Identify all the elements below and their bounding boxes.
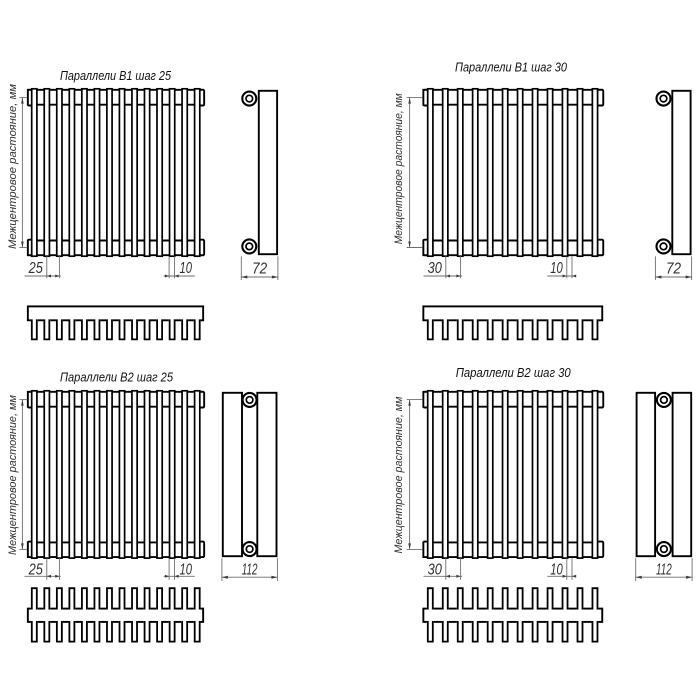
svg-text:25: 25 [28, 561, 43, 578]
svg-text:Межцентровое растояние, мм: Межцентровое растояние, мм [393, 396, 405, 553]
svg-text:Параллели В1 шаг 30: Параллели В1 шаг 30 [455, 60, 568, 75]
svg-text:10: 10 [180, 561, 193, 578]
svg-text:10: 10 [550, 260, 563, 277]
svg-text:112: 112 [656, 561, 672, 578]
svg-text:72: 72 [252, 261, 267, 278]
svg-text:Межцентровое растояние, мм: Межцентровое растояние, мм [7, 395, 19, 555]
svg-text:30: 30 [428, 561, 442, 578]
svg-text:10: 10 [180, 260, 193, 277]
svg-text:10: 10 [550, 561, 563, 578]
svg-text:25: 25 [28, 260, 43, 277]
svg-text:112: 112 [242, 561, 258, 578]
svg-text:Параллели В1 шаг 25: Параллели В1 шаг 25 [60, 68, 172, 83]
svg-text:Межцентровое растояние, мм: Межцентровое растояние, мм [393, 93, 405, 244]
svg-text:72: 72 [666, 261, 681, 278]
svg-text:Межцентровое растояние, мм: Межцентровое растояние, мм [7, 84, 19, 249]
svg-text:Параллели В2 шаг 30: Параллели В2 шаг 30 [456, 365, 572, 380]
svg-text:30: 30 [428, 260, 442, 277]
svg-text:Параллели В2 шаг 25: Параллели В2 шаг 25 [60, 370, 174, 385]
